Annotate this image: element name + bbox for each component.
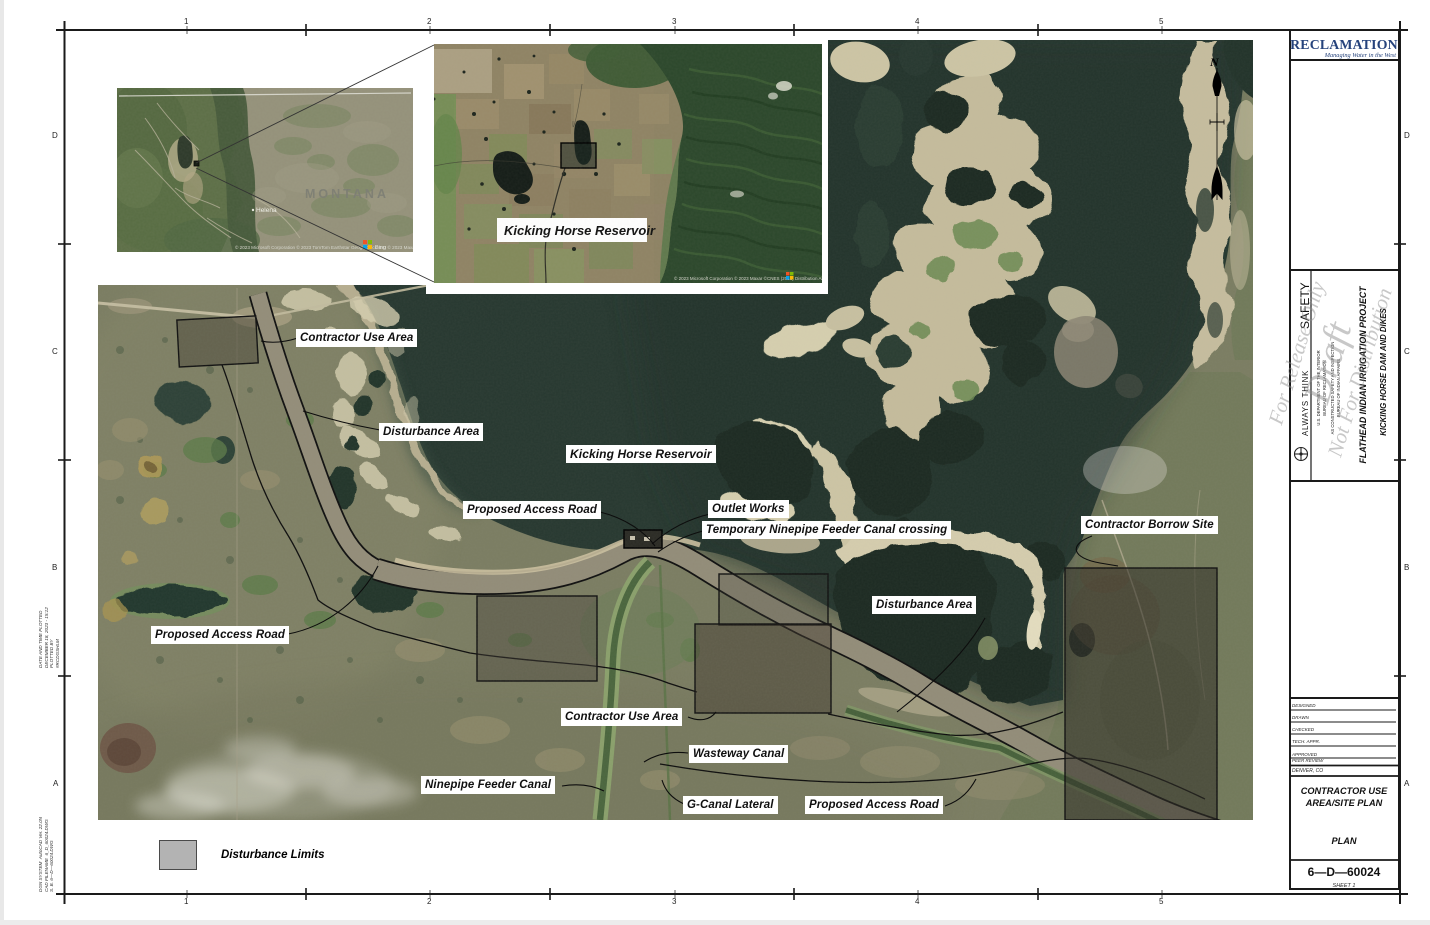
svg-text:APPROVED: APPROVED <box>1291 752 1318 757</box>
svg-text:SAFETY: SAFETY <box>1298 282 1312 329</box>
svg-text:DRAWN: DRAWN <box>1292 715 1310 720</box>
svg-text:CHECKED: CHECKED <box>1292 727 1315 732</box>
svg-text:RECLAMATION: RECLAMATION <box>1290 37 1398 52</box>
svg-text:FLATHEAD INDIAN IRRIGATION PR: FLATHEAD INDIAN IRRIGATION PROJECT <box>1358 286 1368 464</box>
svg-text:DENVER, CO: DENVER, CO <box>1292 768 1323 774</box>
svg-text:AREA/SITE PLAN: AREA/SITE PLAN <box>1305 798 1383 808</box>
svg-text:Managing Water in the West: Managing Water in the West <box>1324 52 1396 59</box>
svg-text:BUREAU OF INDIAN AFFAIRS: BUREAU OF INDIAN AFFAIRS <box>1336 359 1341 417</box>
svg-text:PEER REVIEW: PEER REVIEW <box>1292 758 1324 763</box>
svg-text:AS CONSTRUCTED SAFETY AND INSP: AS CONSTRUCTED SAFETY AND INSPECTION <box>1330 342 1335 435</box>
svg-text:ALWAYS THINK: ALWAYS THINK <box>1301 370 1310 436</box>
svg-text:U.S. DEPARTMENT OF THE INTERIO: U.S. DEPARTMENT OF THE INTERIOR <box>1316 350 1321 425</box>
svg-text:SHEET 1: SHEET 1 <box>1333 883 1356 889</box>
svg-text:CONTRACTOR USE: CONTRACTOR USE <box>1301 786 1388 796</box>
svg-text:TECH. APPR.: TECH. APPR. <box>1292 739 1320 744</box>
svg-text:DESIGNED: DESIGNED <box>1292 703 1316 708</box>
svg-text:PLAN: PLAN <box>1331 836 1356 846</box>
svg-text:6—D—60024: 6—D—60024 <box>1308 865 1381 879</box>
svg-text:BUREAU OF RECLAMATION: BUREAU OF RECLAMATION <box>1322 360 1327 416</box>
svg-text:KICKING HORSE DAM AND DIKES: KICKING HORSE DAM AND DIKES <box>1379 307 1388 435</box>
